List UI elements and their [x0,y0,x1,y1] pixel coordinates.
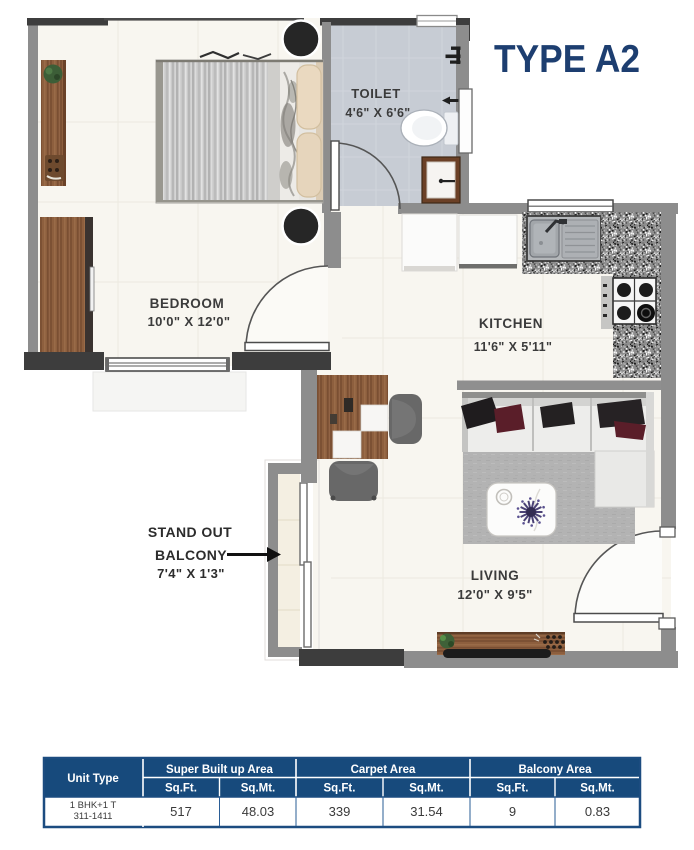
svg-text:10'0" X 12'0": 10'0" X 12'0" [148,314,231,329]
svg-text:12'0" X 9'5": 12'0" X 9'5" [457,587,532,602]
svg-text:Sq.Ft.: Sq.Ft. [324,783,356,795]
svg-text:339: 339 [329,804,351,819]
svg-text:TOILET: TOILET [351,86,401,101]
svg-text:11'6" X 5'11": 11'6" X 5'11" [474,340,553,354]
svg-text:Sq.Mt.: Sq.Mt. [580,783,615,795]
svg-text:TYPE A2: TYPE A2 [494,38,640,81]
svg-text:0.83: 0.83 [585,804,610,819]
svg-text:7'4" X 1'3": 7'4" X 1'3" [157,566,225,581]
svg-text:Sq.Mt.: Sq.Mt. [241,783,276,795]
svg-text:Sq.Mt.: Sq.Mt. [409,783,444,795]
svg-text:Super Built up Area: Super Built up Area [166,764,274,776]
svg-text:BEDROOM: BEDROOM [150,296,225,311]
svg-text:Unit Type: Unit Type [67,773,119,785]
svg-text:48.03: 48.03 [242,804,275,819]
svg-text:Sq.Ft.: Sq.Ft. [165,783,197,795]
svg-text:517: 517 [170,804,192,819]
svg-text:31.54: 31.54 [410,804,443,819]
svg-text:LIVING: LIVING [471,568,520,583]
svg-text:KITCHEN: KITCHEN [479,316,543,331]
svg-text:4'6" X 6'6": 4'6" X 6'6" [345,106,410,120]
svg-text:STAND OUT: STAND OUT [148,524,232,540]
svg-text:BALCONY: BALCONY [155,547,227,563]
svg-text:Balcony Area: Balcony Area [518,764,592,776]
svg-text:311-1411: 311-1411 [74,811,113,822]
svg-text:Carpet Area: Carpet Area [351,764,416,776]
svg-text:Sq.Ft.: Sq.Ft. [497,783,529,795]
svg-text:9: 9 [509,804,516,819]
svg-text:1 BHK+1 T: 1 BHK+1 T [70,800,117,811]
